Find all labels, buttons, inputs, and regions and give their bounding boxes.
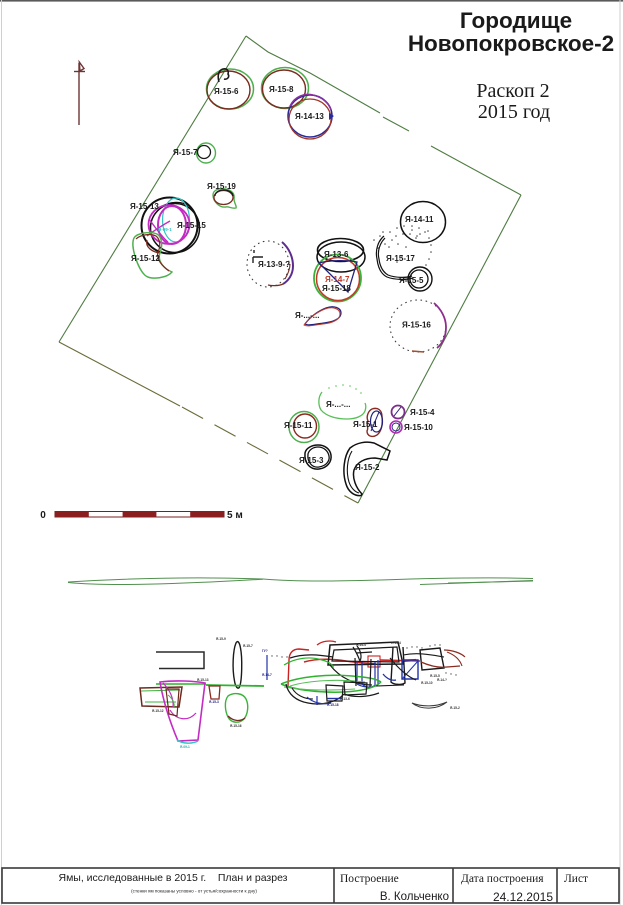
svg-text:Я-15-16: Я-15-16 bbox=[402, 321, 431, 330]
svg-text:Городище: Городище bbox=[460, 8, 572, 33]
svg-text:Я-15-4: Я-15-4 bbox=[391, 641, 401, 645]
svg-text:Я-15-11: Я-15-11 bbox=[284, 421, 313, 430]
svg-text:2015 год: 2015 год bbox=[478, 101, 550, 123]
svg-text:Я-15-18: Я-15-18 bbox=[322, 284, 351, 293]
svg-text:Я-15-5: Я-15-5 bbox=[430, 674, 440, 678]
svg-text:Я-...-...: Я-...-... bbox=[326, 400, 350, 409]
svg-text:Я-14-11: Я-14-11 bbox=[405, 215, 434, 224]
svg-text:Я-15-5: Я-15-5 bbox=[399, 276, 424, 285]
svg-text:Я-14-13: Я-14-13 bbox=[295, 112, 324, 121]
svg-text:Я-15-8: Я-15-8 bbox=[269, 85, 294, 94]
svg-text:Я-15-3: Я-15-3 bbox=[209, 700, 219, 704]
svg-text:Новопокровское-2: Новопокровское-2 bbox=[408, 31, 614, 56]
svg-text:Я-09-1: Я-09-1 bbox=[180, 745, 190, 749]
svg-text:Я-15-9: Я-15-9 bbox=[216, 637, 226, 641]
svg-text:Я-15-16: Я-15-16 bbox=[230, 724, 242, 728]
svg-text:Я-15-15: Я-15-15 bbox=[177, 221, 206, 230]
svg-text:Я-15-4: Я-15-4 bbox=[410, 408, 435, 417]
svg-text:Ямы, исследованные в 2015 г.: Ямы, исследованные в 2015 г. План и разр… bbox=[58, 872, 287, 884]
svg-text:В. Кольченко: В. Кольченко bbox=[380, 891, 449, 903]
svg-text:Я-14-?: Я-14-? bbox=[437, 678, 447, 682]
svg-text:Я-14-4: Я-14-4 bbox=[356, 643, 366, 647]
svg-text:Я-15-10: Я-15-10 bbox=[421, 681, 433, 685]
svg-text:Я-15-1: Я-15-1 bbox=[353, 420, 378, 429]
svg-text:Я-15-13: Я-15-13 bbox=[130, 202, 159, 211]
svg-text:ГУ?: ГУ? bbox=[262, 649, 268, 653]
svg-text:Я-13-9-?: Я-13-9-? bbox=[258, 260, 290, 269]
svg-text:0: 0 bbox=[40, 510, 46, 521]
svg-text:5 м: 5 м bbox=[227, 510, 243, 521]
svg-text:Я-15-3: Я-15-3 bbox=[299, 456, 324, 465]
svg-text:(стенки ям показаны условно -: (стенки ям показаны условно - от устья/с… bbox=[131, 889, 257, 894]
svg-text:Я-15-2: Я-15-2 bbox=[450, 706, 460, 710]
svg-text:24.12.2015: 24.12.2015 bbox=[493, 890, 553, 904]
svg-text:Я-15-17: Я-15-17 bbox=[386, 254, 415, 263]
svg-text:Я-15-19: Я-15-19 bbox=[207, 182, 236, 191]
svg-text:Я-13-6: Я-13-6 bbox=[324, 250, 349, 259]
svg-text:Я-15-7: Я-15-7 bbox=[243, 644, 253, 648]
svg-text:Я-13-6: Я-13-6 bbox=[340, 697, 350, 701]
svg-text:Я-15-6: Я-15-6 bbox=[214, 87, 239, 96]
svg-text:Я-14-7: Я-14-7 bbox=[325, 275, 350, 284]
svg-text:Раскоп 2: Раскоп 2 bbox=[476, 80, 549, 102]
svg-text:Я-..,-...: Я-..,-... bbox=[295, 311, 319, 320]
svg-text:Дата построения: Дата построения bbox=[461, 873, 544, 885]
svg-text:Я-15-18: Я-15-18 bbox=[327, 703, 339, 707]
svg-text:Я-14-7: Я-14-7 bbox=[262, 673, 272, 677]
svg-text:Я-15-7: Я-15-7 bbox=[173, 148, 198, 157]
svg-text:Я-15-12: Я-15-12 bbox=[152, 709, 164, 713]
svg-text:Построение: Построение bbox=[340, 873, 399, 885]
svg-text:Я-15-12: Я-15-12 bbox=[131, 254, 160, 263]
svg-text:Я-09-1: Я-09-1 bbox=[158, 227, 172, 232]
svg-text:Я-15-2: Я-15-2 bbox=[355, 463, 380, 472]
svg-text:Лист: Лист bbox=[564, 873, 588, 885]
svg-text:Я-15-10: Я-15-10 bbox=[404, 423, 433, 432]
